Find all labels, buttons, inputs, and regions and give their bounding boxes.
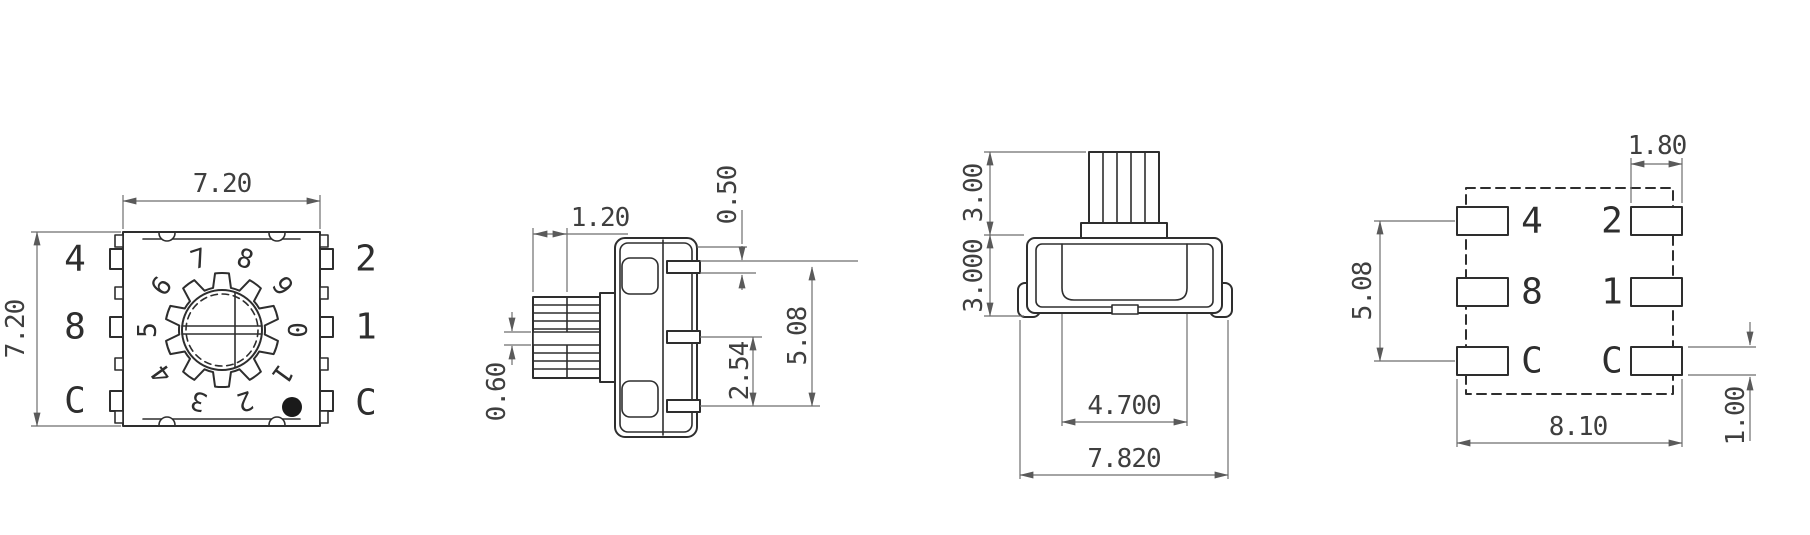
pad-label: 4 [1521,201,1543,242]
dial-digit-5: 5 [133,322,163,338]
mold-tab [115,235,123,247]
pad-left-4 [1457,207,1508,235]
dim-value: 1.20 [571,203,630,233]
orientation-marker-dot [282,397,302,417]
dim-shaft-slot: 0.60 [482,312,531,421]
side-pin-top [667,261,700,273]
pin-label: 4 [64,239,86,280]
pin-right-2 [320,249,333,269]
dim-inner-width: 4.700 [1062,314,1187,426]
pin-left-c [110,391,123,411]
front-body-outline [1027,238,1222,313]
dim-value: 7.20 [1,300,31,359]
mold-tab [115,358,123,370]
dim-shaft-height: 3.00 [959,152,1086,235]
dim-pad-span: 8.10 [1457,379,1682,447]
dim-top-width: 7.20 [123,169,320,229]
pad-left-8 [1457,278,1508,306]
view-top: 0123456789 4 8 C 2 1 C 7.20 7.20 [1,169,377,426]
mold-tab [320,287,328,299]
pin-label: 2 [355,239,377,280]
side-pin-middle [667,331,700,343]
dim-value: 2.54 [725,341,755,400]
pad-label: 2 [1601,201,1623,242]
dim-top-height: 7.20 [1,232,121,426]
side-pin-bottom [667,400,700,412]
shaft-slot [533,332,600,345]
pad-label: 1 [1601,272,1623,313]
dim-value: 7.820 [1087,444,1160,474]
pin-right-c [320,391,333,411]
pad-left-c [1457,347,1508,375]
pin-label: C [64,381,86,422]
mold-tab [320,411,328,423]
dial-digit-0: 0 [281,322,311,338]
view-land-pattern: 4 8 C 2 1 C 1.80 5.08 8.10 [1348,131,1756,447]
dim-pin-pitch: 2.54 [700,337,762,406]
dim-pad-height: 1.00 [1688,322,1756,445]
pad-right-1 [1631,278,1682,306]
pad-right-2 [1631,207,1682,235]
mold-tab [115,287,123,299]
mold-tab [115,411,123,423]
pin-right-1 [320,317,333,337]
pin-left-4 [110,249,123,269]
mold-tab [320,358,328,370]
side-cutout-bottom [622,381,658,417]
pin-label: 8 [64,307,86,348]
bottom-notch [1112,305,1138,314]
shaft-flange [1081,223,1167,238]
dim-pin-thickness: 0.50 [700,166,858,290]
mold-tab [320,235,328,247]
shaft-bushing [600,293,615,382]
pin-label: 1 [355,307,377,348]
rotary-dip-switch-drawing: 0123456789 4 8 C 2 1 C 7.20 7.20 [0,0,1810,535]
technical-drawing: 0123456789 4 8 C 2 1 C 7.20 7.20 [0,0,1810,535]
dim-value: 7.20 [193,169,252,199]
dim-pad-width: 1.80 [1628,131,1687,203]
dim-value: 1.80 [1628,131,1687,161]
view-front: 3.00 3.000 4.700 7.820 [959,152,1232,479]
side-cutout-top [622,258,658,294]
dim-value: 3.000 [959,239,989,312]
pin-left-8 [110,317,123,337]
pad-right-c [1631,347,1682,375]
dim-value: 1.00 [1721,387,1751,446]
dim-value: 0.50 [713,166,743,225]
pad-label: C [1521,341,1543,382]
dim-value: 5.08 [783,307,813,366]
pad-label: C [1601,341,1623,382]
pin-label: C [355,383,377,424]
dim-value: 3.00 [959,164,989,223]
dim-value: 5.08 [1348,262,1378,321]
dim-body-height: 3.000 [959,235,1024,316]
front-shaft [1089,152,1159,223]
view-side: 1.20 0.50 0.60 2.54 5.08 [482,166,858,437]
dim-pad-row-pitch: 5.08 [1348,221,1455,361]
dim-value: 8.10 [1549,412,1608,442]
dim-value: 0.60 [482,363,512,422]
pad-label: 8 [1521,272,1543,313]
dim-value: 4.700 [1087,391,1160,421]
